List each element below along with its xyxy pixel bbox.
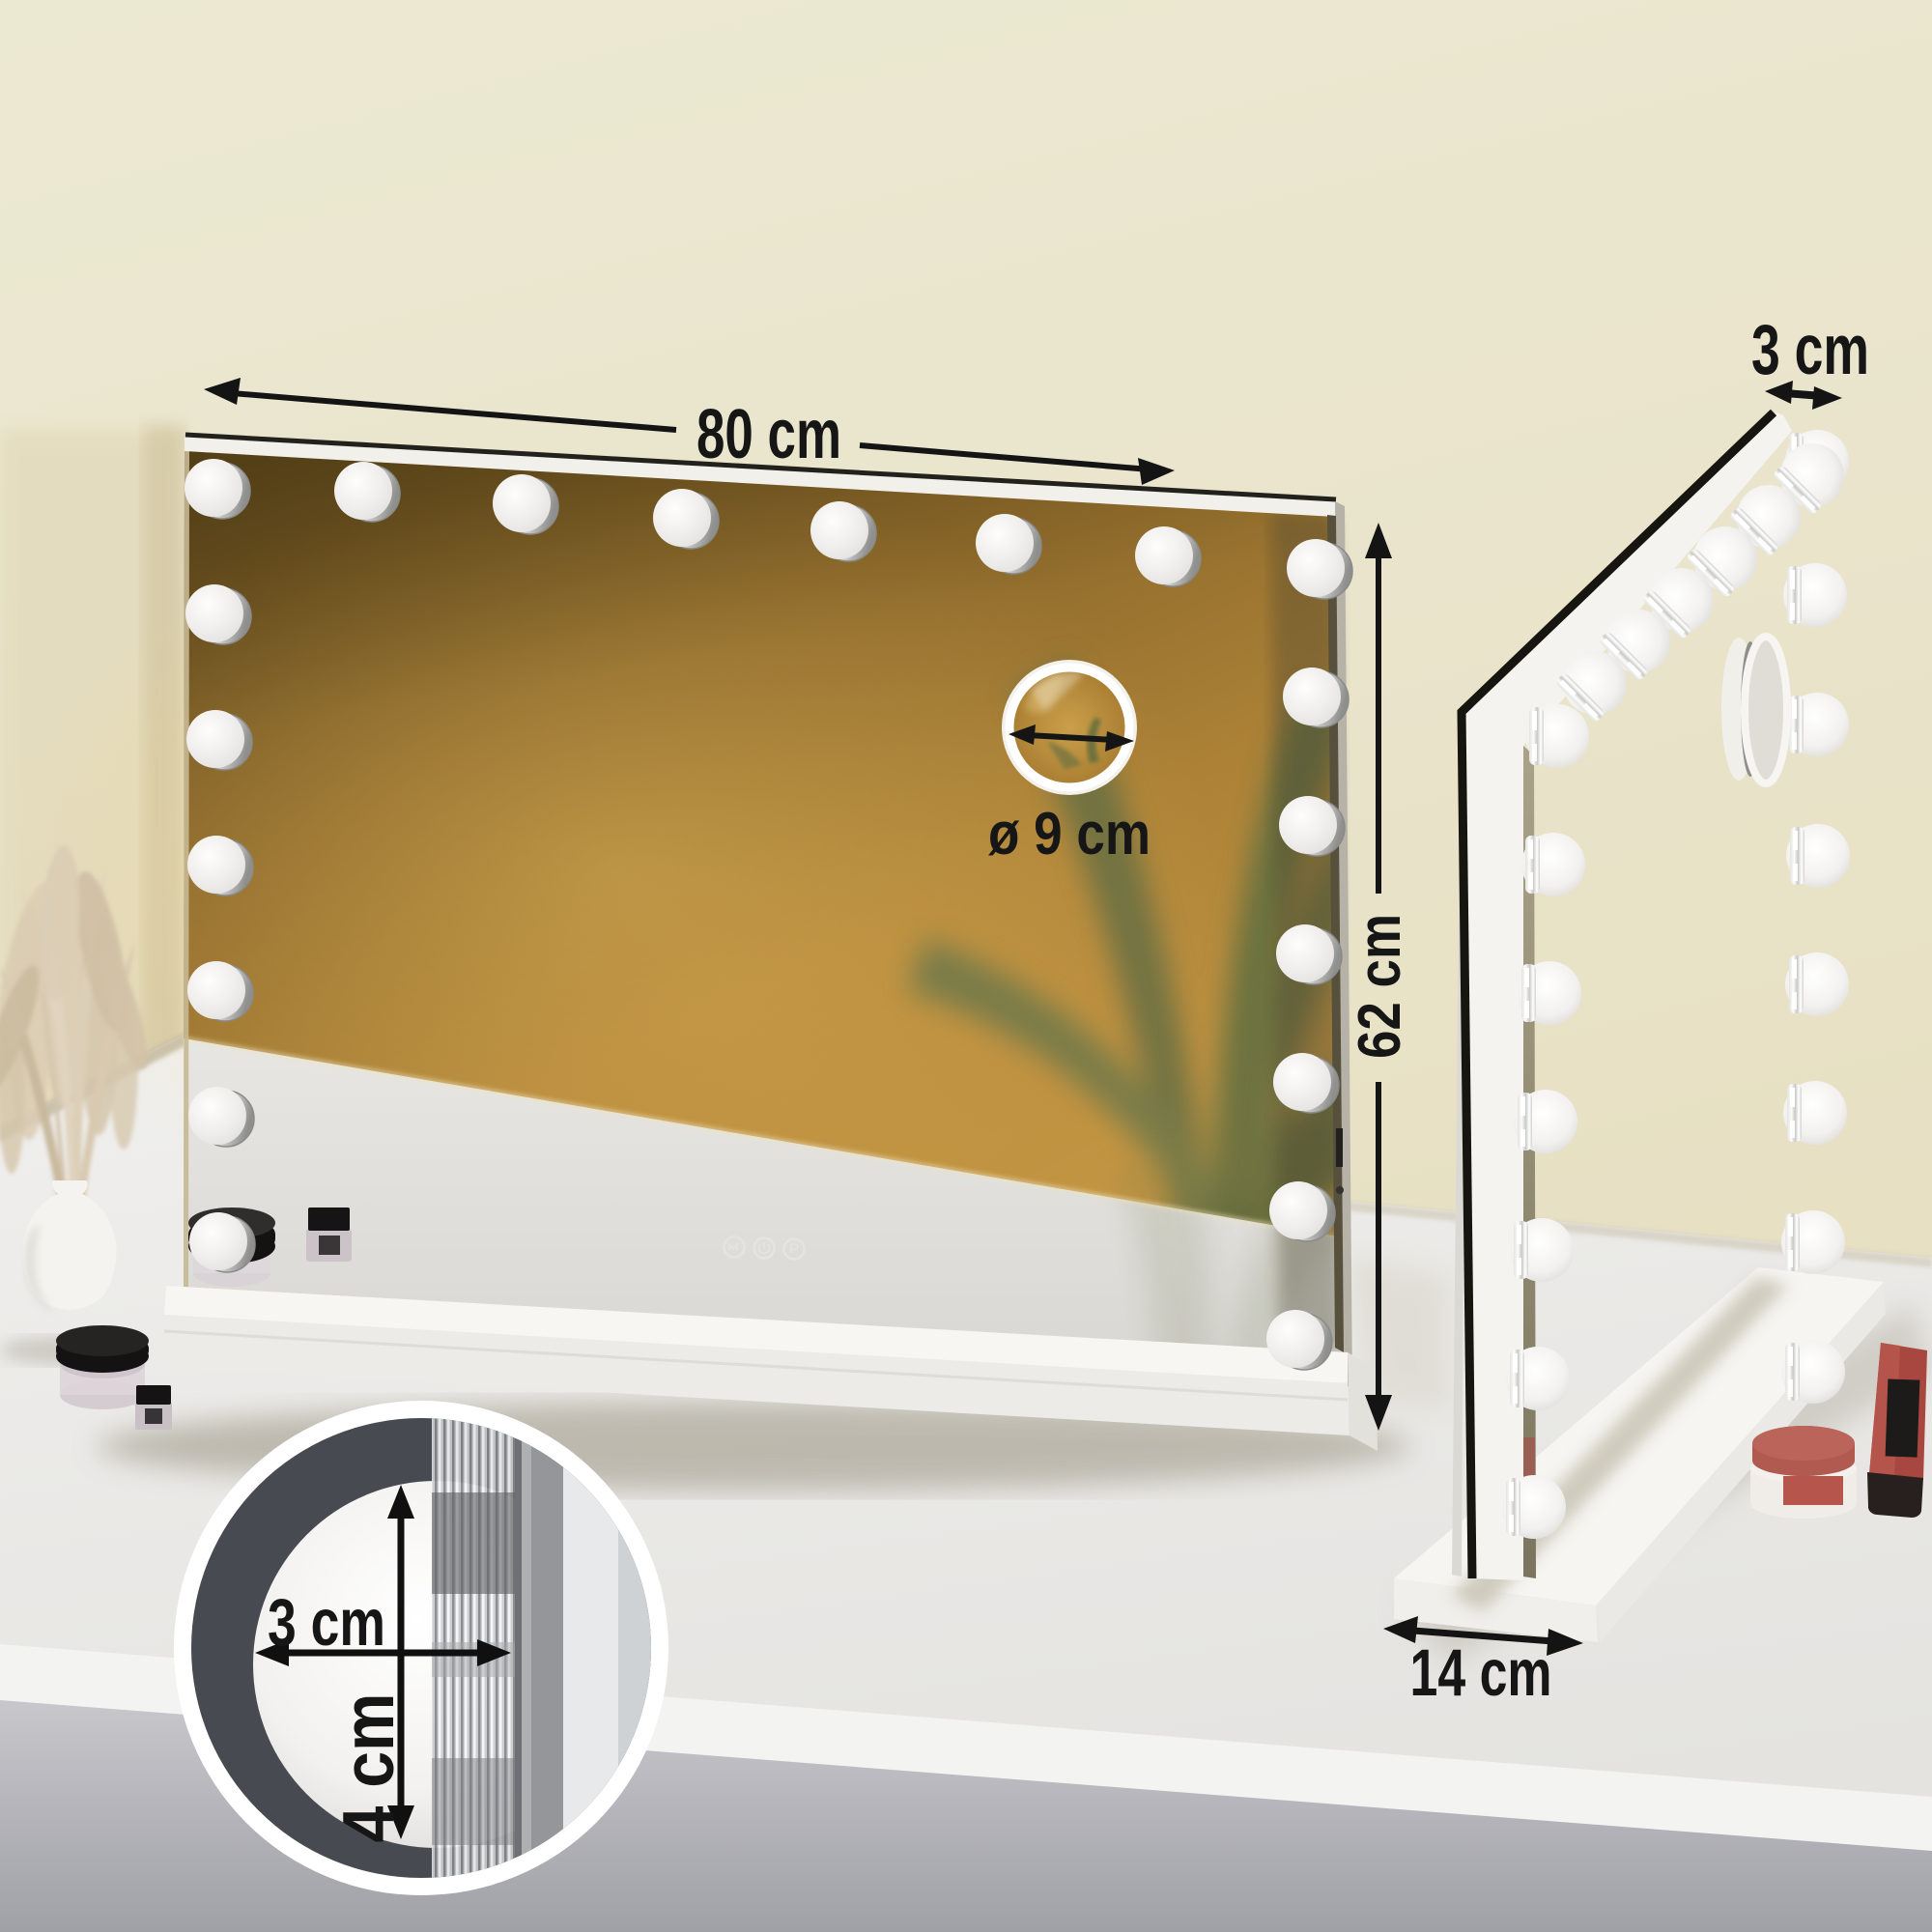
svg-text:62 cm: 62 cm [1347,914,1413,1059]
svg-text:14 cm: 14 cm [1410,1635,1552,1710]
svg-text:3 cm: 3 cm [268,1585,385,1660]
svg-text:ø 9 cm: ø 9 cm [988,801,1151,867]
svg-text:80 cm: 80 cm [696,396,841,473]
svg-text:3 cm: 3 cm [1751,311,1869,389]
svg-text:4 cm: 4 cm [327,1693,409,1843]
